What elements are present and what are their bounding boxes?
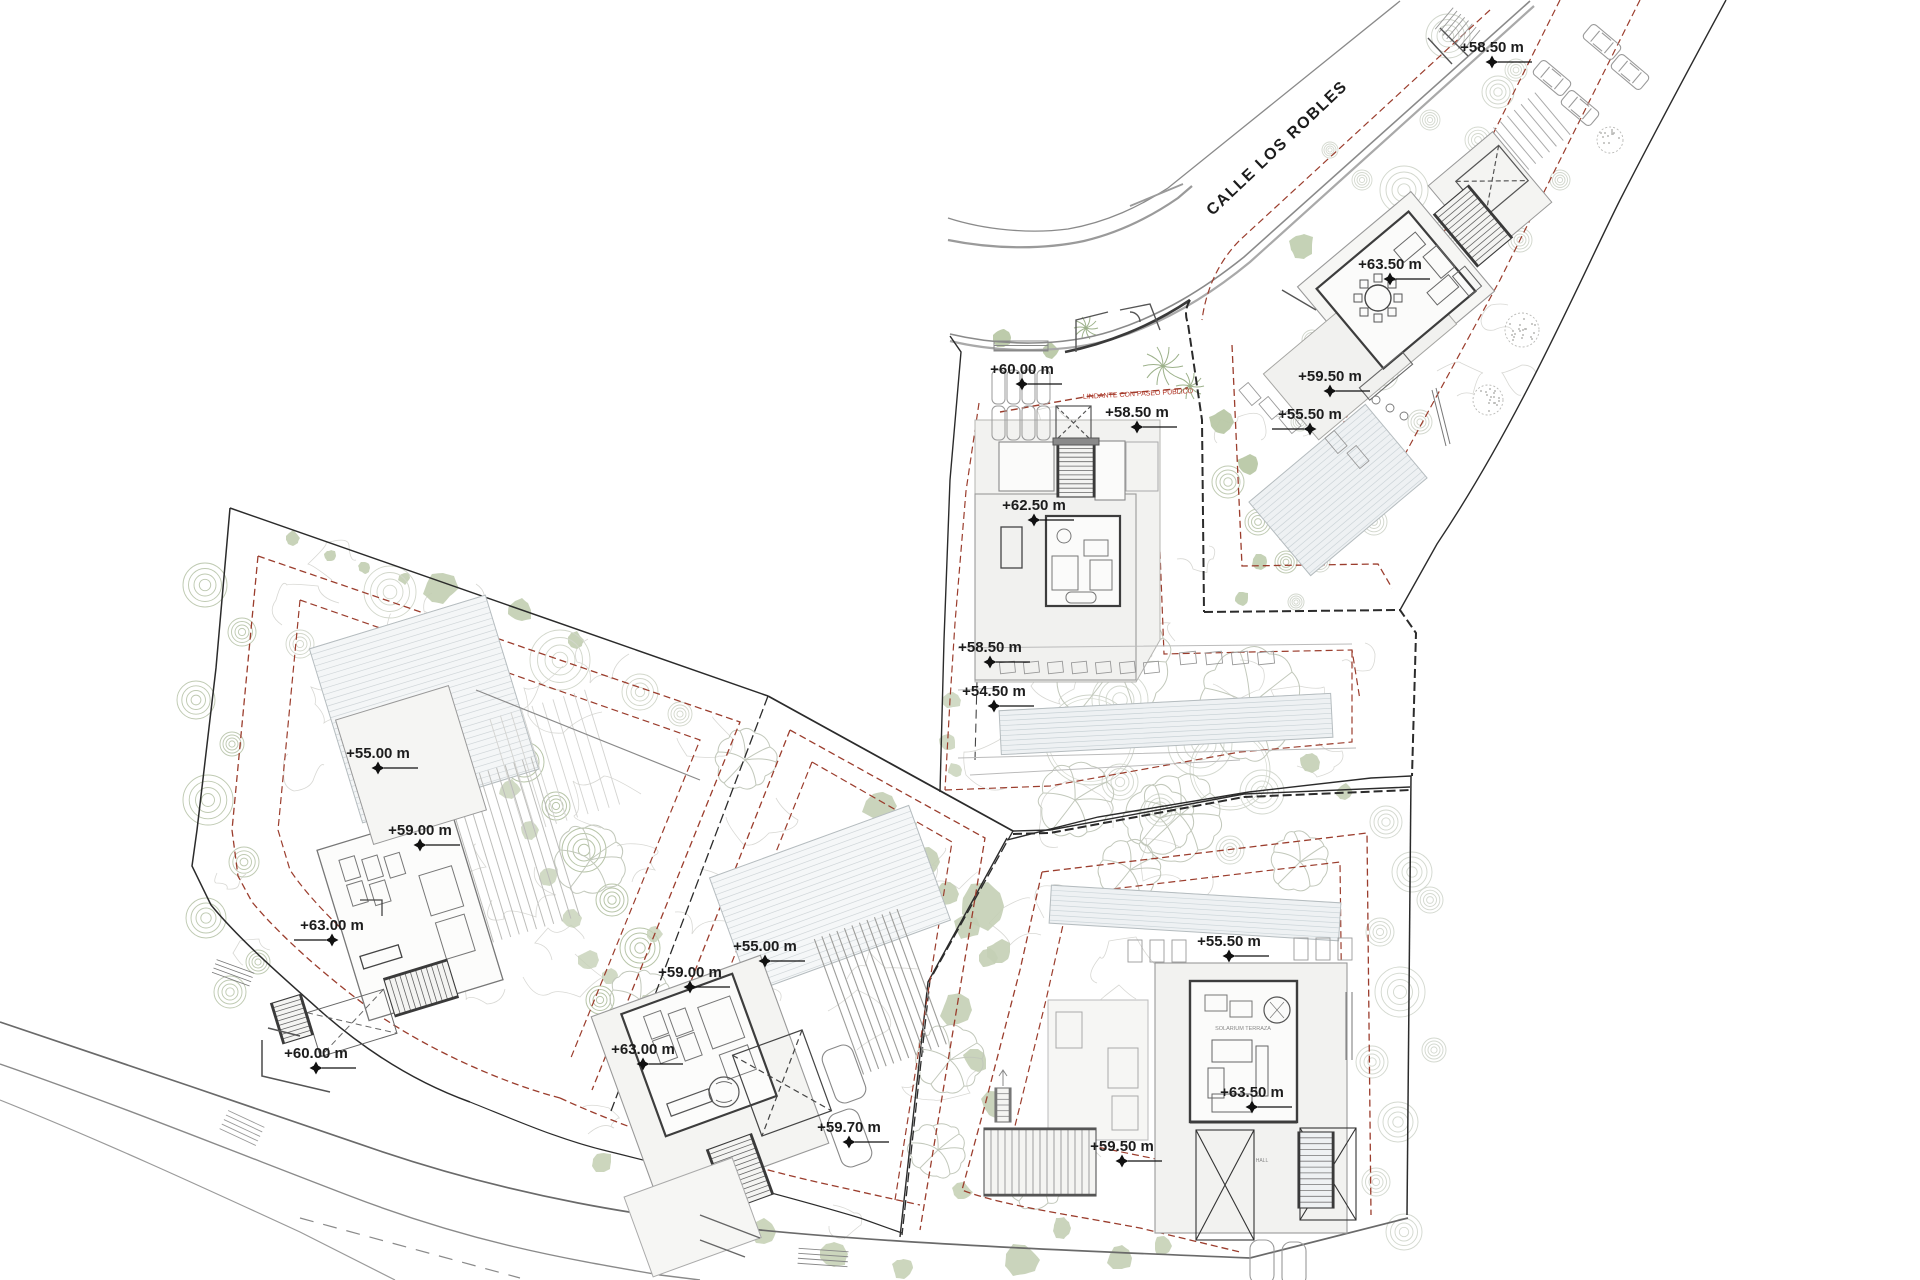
svg-text:+55.50 m: +55.50 m [1197,933,1261,950]
svg-text:+58.50 m: +58.50 m [1460,39,1524,56]
svg-text:+59.00 m: +59.00 m [388,822,452,839]
svg-text:+60.00 m: +60.00 m [284,1045,348,1062]
svg-text:+55.00 m: +55.00 m [346,745,410,762]
svg-text:+63.50 m: +63.50 m [1358,256,1422,273]
svg-text:+59.00 m: +59.00 m [658,964,722,981]
svg-text:+55.50 m: +55.50 m [1278,406,1342,423]
svg-text:+63.00 m: +63.00 m [300,917,364,934]
svg-text:+54.50 m: +54.50 m [962,683,1026,700]
svg-text:+62.50 m: +62.50 m [1002,497,1066,514]
svg-text:+59.50 m: +59.50 m [1090,1138,1154,1155]
svg-text:+63.00 m: +63.00 m [611,1041,675,1058]
svg-text:+58.50 m: +58.50 m [958,639,1022,656]
svg-text:+58.50 m: +58.50 m [1105,404,1169,421]
svg-text:SOLARIUM TERRAZA: SOLARIUM TERRAZA [1215,1026,1271,1032]
svg-text:+55.00 m: +55.00 m [733,938,797,955]
svg-text:+59.70 m: +59.70 m [817,1119,881,1136]
svg-text:+59.50 m: +59.50 m [1298,368,1362,385]
svg-text:HALL: HALL [1256,1158,1269,1164]
svg-text:+63.50 m: +63.50 m [1220,1084,1284,1101]
svg-text:+60.00 m: +60.00 m [990,361,1054,378]
